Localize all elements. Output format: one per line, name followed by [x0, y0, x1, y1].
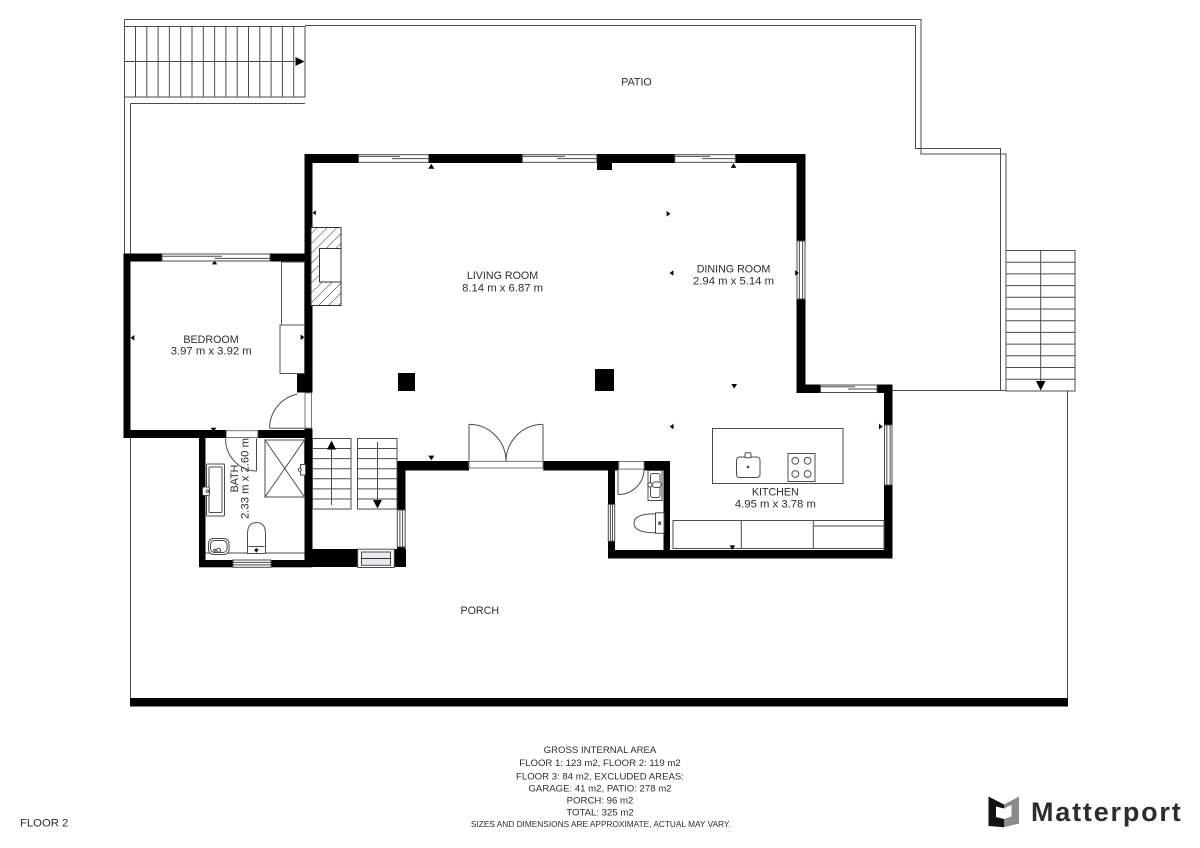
svg-text:2.94 m x 5.14 m: 2.94 m x 5.14 m: [693, 276, 774, 288]
svg-text:LIVING ROOM: LIVING ROOM: [467, 270, 538, 282]
svg-text:FLOOR 1: 123 m2, FLOOR 2: 119: FLOOR 1: 123 m2, FLOOR 2: 119 m2: [519, 758, 680, 769]
svg-text:3.97 m x 3.92 m: 3.97 m x 3.92 m: [171, 345, 252, 357]
svg-text:2.33 m x 2.60 m: 2.33 m x 2.60 m: [240, 438, 252, 519]
svg-text:BEDROOM: BEDROOM: [183, 334, 238, 346]
svg-text:FLOOR 3: 84 m2, EXCLUDED AREAS: FLOOR 3: 84 m2, EXCLUDED AREAS:: [516, 772, 684, 783]
svg-text:PORCH: PORCH: [460, 605, 499, 617]
svg-text:DINING ROOM: DINING ROOM: [697, 264, 771, 276]
svg-text:8.14 m x 6.87 m: 8.14 m x 6.87 m: [462, 283, 543, 295]
svg-text:TOTAL: 325 m2: TOTAL: 325 m2: [566, 807, 633, 818]
svg-text:KITCHEN: KITCHEN: [752, 487, 799, 499]
svg-text:4.95 m x 3.78 m: 4.95 m x 3.78 m: [735, 499, 816, 511]
svg-text:SIZES AND DIMENSIONS ARE APPRO: SIZES AND DIMENSIONS ARE APPROXIMATE, AC…: [471, 819, 731, 829]
svg-text:Matterport: Matterport: [1031, 797, 1183, 827]
svg-text:PATIO: PATIO: [621, 76, 651, 88]
svg-text:GARAGE: 41 m2, PATIO: 278 m2: GARAGE: 41 m2, PATIO: 278 m2: [528, 784, 671, 795]
svg-text:GROSS INTERNAL AREA: GROSS INTERNAL AREA: [544, 745, 657, 756]
svg-text:FLOOR 2: FLOOR 2: [20, 818, 68, 830]
svg-text:PORCH: 96 m2: PORCH: 96 m2: [567, 795, 634, 806]
